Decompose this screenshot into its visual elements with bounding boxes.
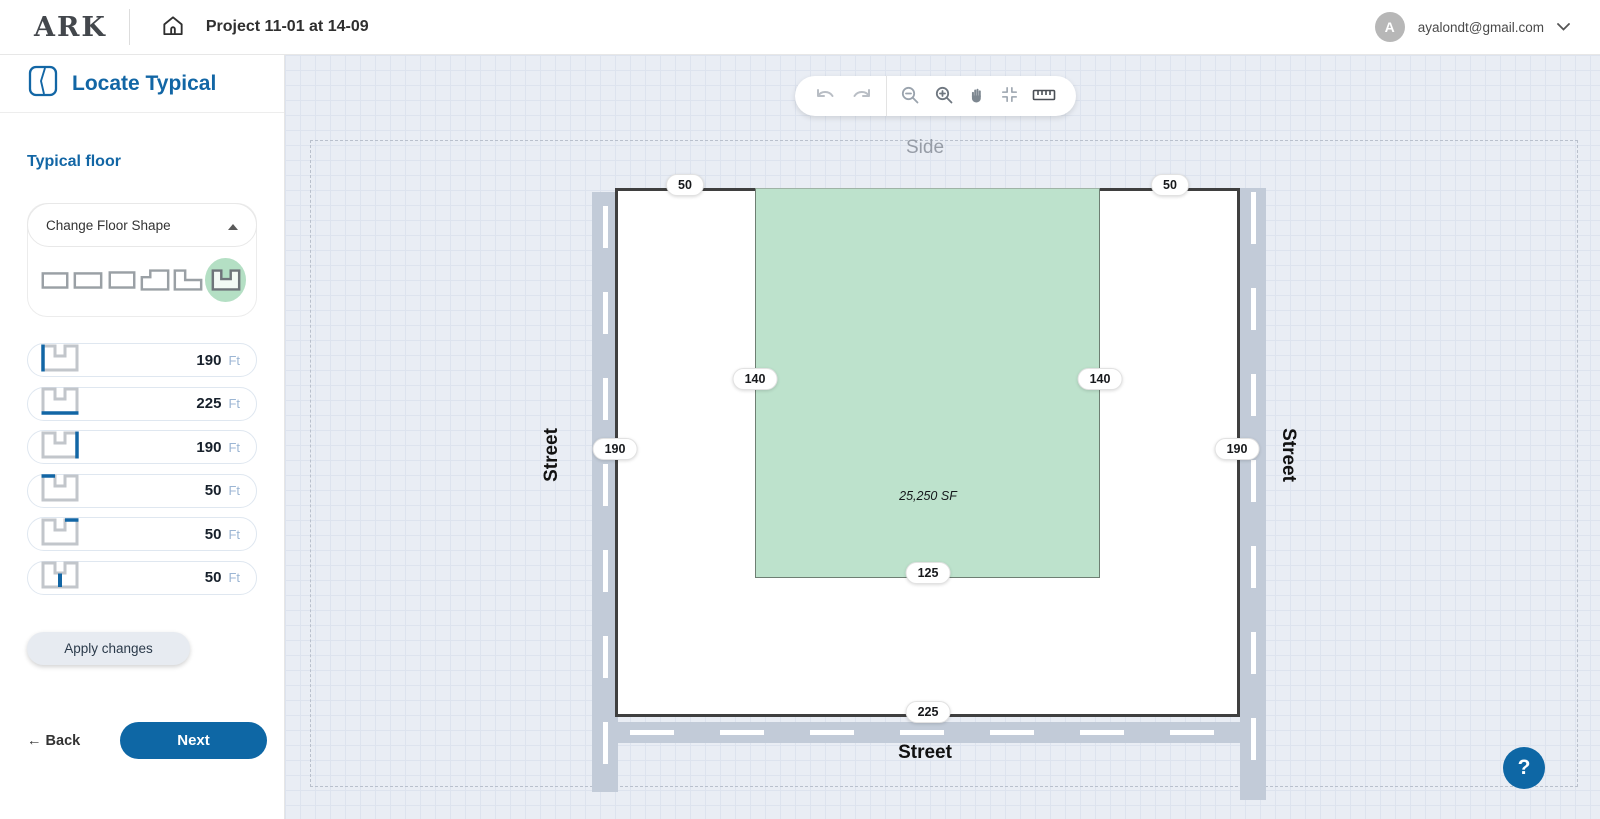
toolbar-divider [886, 76, 887, 116]
app-header: ARK Project 11-01 at 14-09 A ayalondt@gm… [0, 0, 1600, 55]
plan-canvas[interactable]: Side Street Street Street 50 50 140 140 … [285, 55, 1600, 819]
dim-bubble-notch-bottom[interactable]: 125 [906, 562, 951, 584]
dimension-input-top-left-wing[interactable]: 50 Ft [27, 474, 257, 508]
change-floor-shape-toggle[interactable]: Change Floor Shape [27, 203, 257, 247]
dimension-value: 50 [205, 482, 222, 499]
dimension-input-top-right-wing[interactable]: 50 Ft [27, 517, 257, 551]
header-divider [129, 9, 130, 45]
shape-l-notch-top-right[interactable] [172, 262, 205, 298]
dimension-input-right-side[interactable]: 190 Ft [27, 430, 257, 464]
section-title: Typical floor [27, 153, 257, 171]
dimension-inputs: 190 Ft 225 Ft 190 Ft [27, 343, 257, 595]
dimension-unit: Ft [228, 570, 240, 585]
avatar[interactable]: A [1375, 12, 1405, 42]
dim-bubble-notch-right[interactable]: 140 [1078, 368, 1123, 390]
back-arrow-icon: ← [27, 733, 42, 749]
redo-button[interactable] [850, 86, 872, 107]
dim-bubble-wing-top-left[interactable]: 50 [666, 174, 704, 196]
locate-typical-icon [28, 65, 58, 102]
undo-icon [815, 86, 837, 107]
pan-hand-icon [967, 85, 986, 107]
dim-bubble-lot-right[interactable]: 190 [1215, 438, 1260, 460]
fit-to-screen-icon [1000, 85, 1019, 107]
shape-rectangle-small[interactable] [105, 262, 138, 298]
shape-rectangle[interactable] [71, 262, 104, 298]
project-title: Project 11-01 at 14-09 [206, 18, 369, 36]
street-label-bottom: Street [898, 742, 952, 764]
street-label-left: Street [541, 428, 563, 482]
dim-bubble-notch-left[interactable]: 140 [733, 368, 778, 390]
dimension-input-left-side[interactable]: 190 Ft [27, 343, 257, 377]
dimension-value: 50 [205, 526, 222, 543]
shape-u-shape-selected[interactable] [205, 258, 246, 302]
ark-logo: ARK [34, 12, 107, 43]
shape-rectangle-wide[interactable] [38, 262, 71, 298]
home-icon [160, 13, 186, 42]
side-label: Side [906, 137, 944, 159]
help-button[interactable]: ? [1503, 747, 1545, 789]
sidebar: Locate Typical Typical floor Change Floo… [0, 55, 285, 819]
fit-to-screen-button[interactable] [1000, 85, 1019, 107]
zoom-out-icon [900, 85, 920, 108]
dimension-input-bottom-side[interactable]: 225 Ft [27, 387, 257, 421]
redo-icon [850, 86, 872, 107]
chevron-down-icon[interactable] [1557, 23, 1570, 31]
street-band-right [1240, 188, 1266, 800]
dim-bubble-lot-bottom[interactable]: 225 [906, 701, 951, 723]
back-link[interactable]: ← Back [27, 733, 80, 749]
zoom-out-button[interactable] [900, 85, 920, 108]
step-header: Locate Typical [0, 55, 284, 113]
dim-bubble-lot-left[interactable]: 190 [593, 438, 638, 460]
floor-shape-card: Change Floor Shape [27, 203, 257, 317]
pan-hand-button[interactable] [967, 85, 986, 107]
street-band-bottom [612, 722, 1241, 743]
floor-area-label: 25,250 SF [899, 489, 957, 503]
zoom-in-icon [934, 85, 954, 108]
u-shape-notch-depth-icon [40, 560, 80, 595]
dim-bubble-wing-top-right[interactable]: 50 [1151, 174, 1189, 196]
dimension-unit: Ft [228, 527, 240, 542]
shape-l-notch-top-left[interactable] [138, 262, 171, 298]
dimension-value: 225 [196, 395, 221, 412]
zoom-in-button[interactable] [934, 85, 954, 108]
dimension-unit: Ft [228, 396, 240, 411]
caret-up-icon [228, 218, 238, 233]
ruler-icon [1032, 87, 1056, 106]
u-shape-right-edge-icon [40, 430, 80, 465]
u-shape-left-edge-icon [40, 343, 80, 378]
canvas-toolbar [795, 76, 1076, 116]
dimension-unit: Ft [228, 353, 240, 368]
u-shape-top-right-edge-icon [40, 517, 80, 552]
undo-button[interactable] [815, 86, 837, 107]
ruler-button[interactable] [1032, 87, 1056, 106]
dimension-value: 190 [196, 352, 221, 369]
change-floor-shape-label: Change Floor Shape [46, 218, 171, 233]
dimension-value: 50 [205, 569, 222, 586]
step-title: Locate Typical [72, 72, 216, 96]
dimension-unit: Ft [228, 440, 240, 455]
back-label: Back [46, 733, 81, 749]
u-shape-top-left-edge-icon [40, 473, 80, 508]
dimension-value: 190 [196, 439, 221, 456]
next-button[interactable]: Next [120, 722, 267, 759]
street-label-right: Street [1277, 428, 1299, 482]
notch-area[interactable] [755, 188, 1100, 578]
shape-options-row [28, 246, 256, 316]
apply-changes-button[interactable]: Apply changes [27, 632, 190, 665]
dimension-input-below-notch[interactable]: 50 Ft [27, 561, 257, 595]
dimension-unit: Ft [228, 483, 240, 498]
u-shape-bottom-edge-icon [40, 386, 80, 421]
home-button[interactable] [160, 13, 186, 42]
user-email: ayalondt@gmail.com [1418, 20, 1544, 35]
